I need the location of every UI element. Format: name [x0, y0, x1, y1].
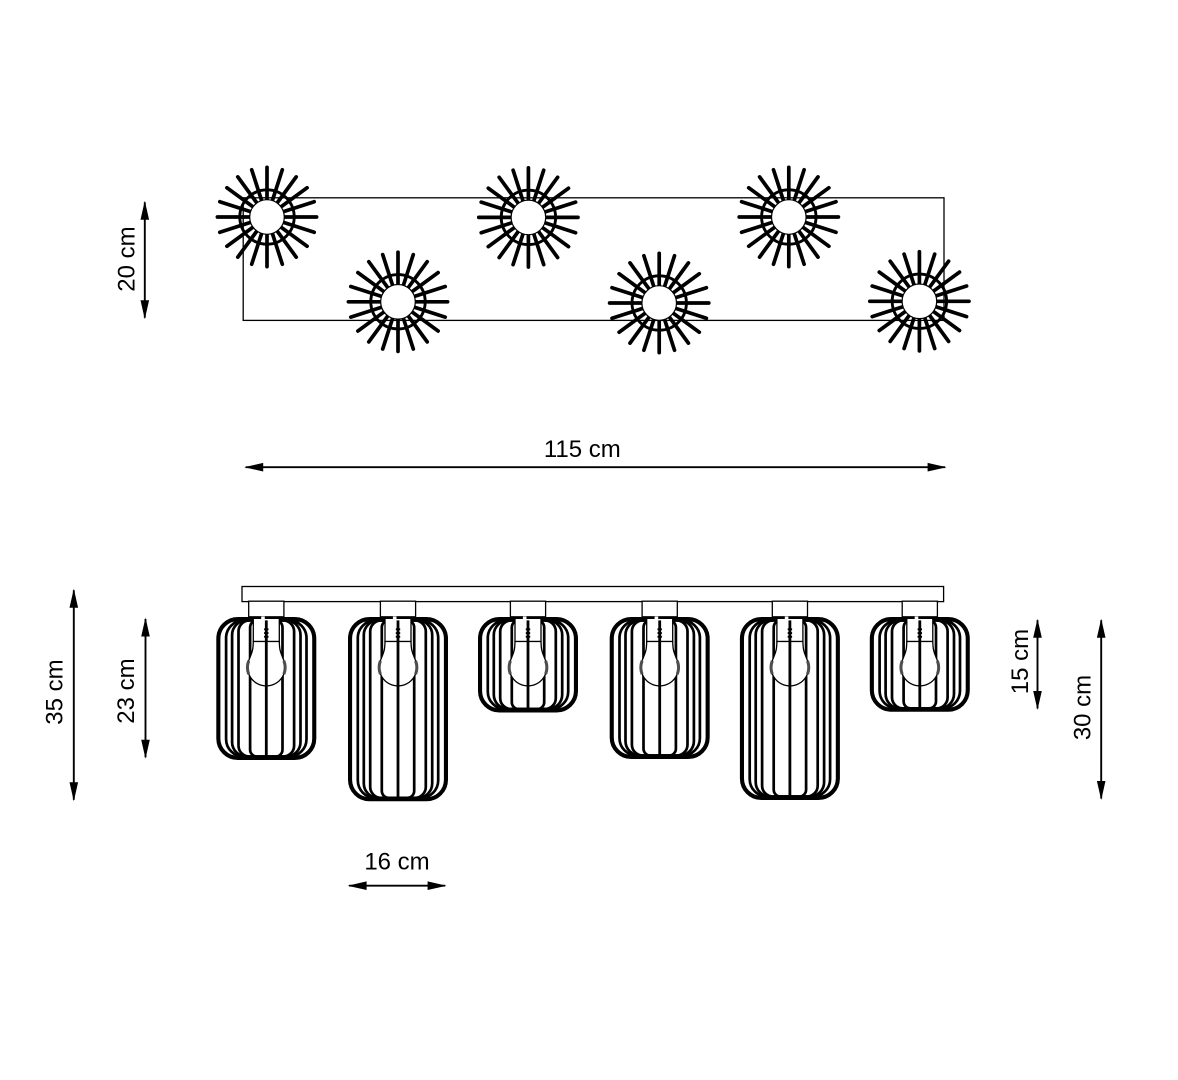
svg-text:15 cm: 15 cm [1007, 629, 1034, 694]
svg-text:115 cm: 115 cm [544, 436, 621, 463]
svg-text:35 cm: 35 cm [41, 659, 68, 724]
svg-text:30 cm: 30 cm [1070, 675, 1097, 740]
svg-text:16 cm: 16 cm [364, 848, 429, 875]
svg-text:23 cm: 23 cm [113, 658, 140, 723]
svg-text:20 cm: 20 cm [113, 226, 140, 291]
